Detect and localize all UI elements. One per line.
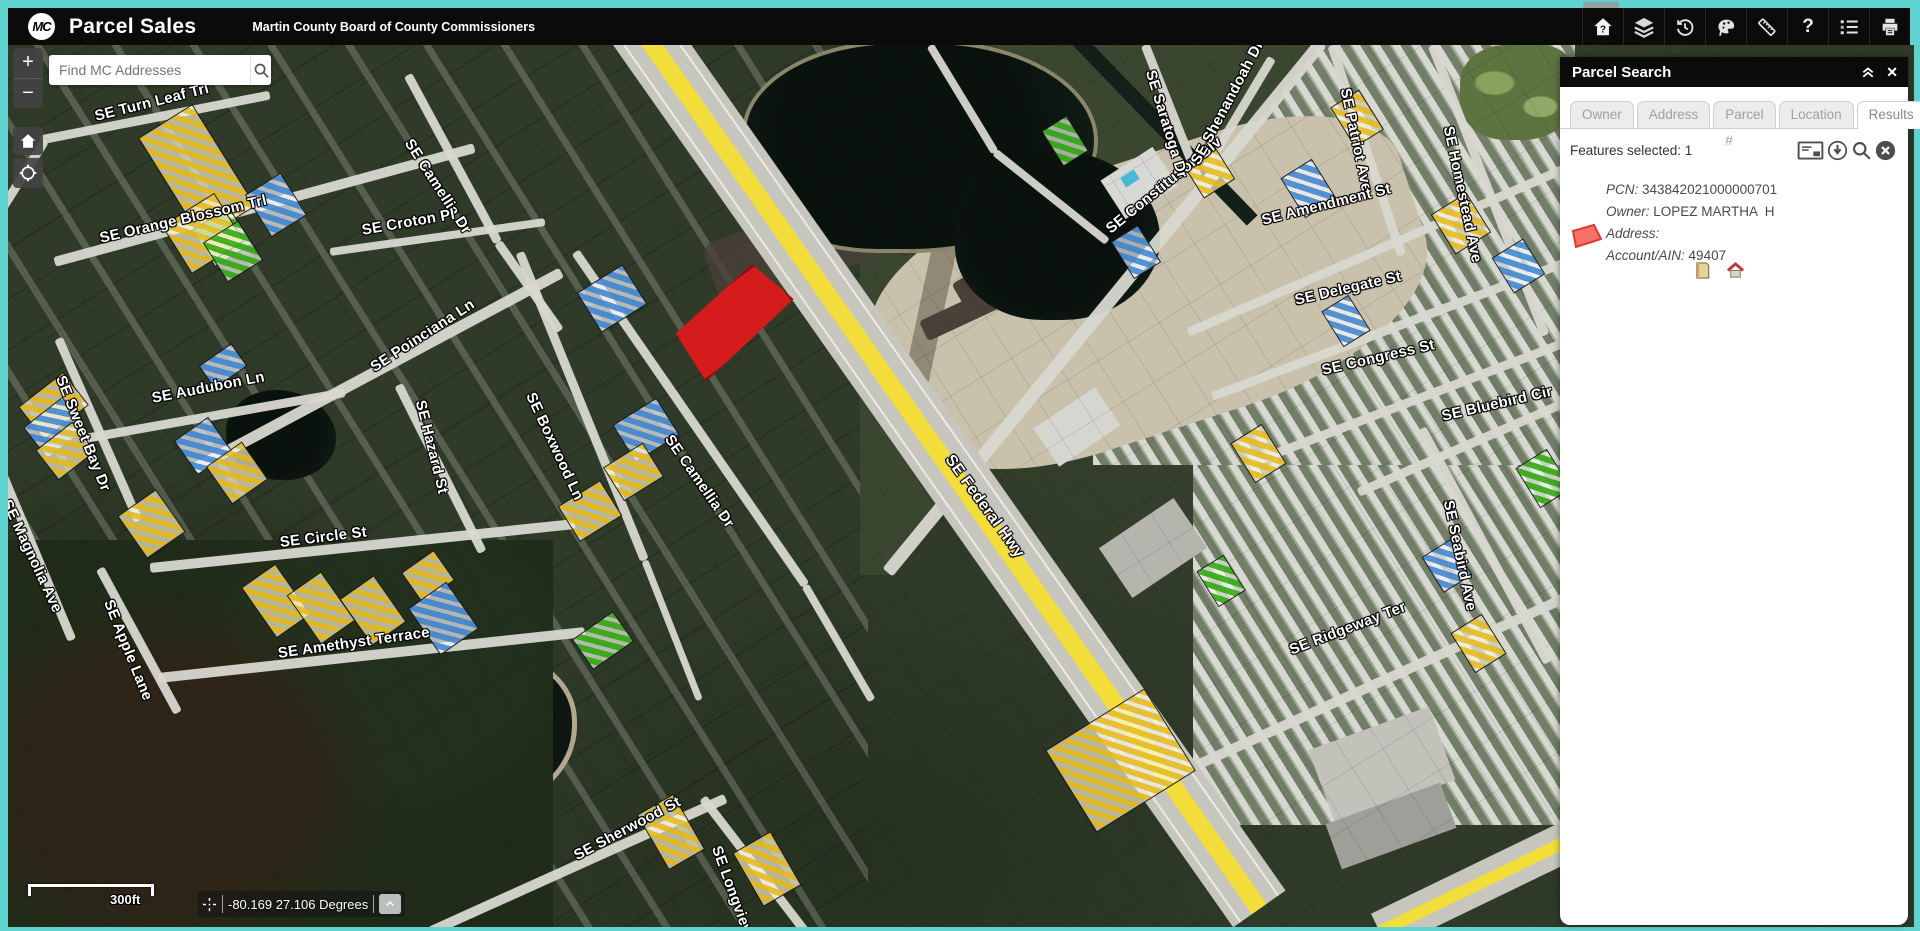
download-circle-icon <box>1827 140 1848 161</box>
mailing-labels-button[interactable] <box>1797 141 1824 160</box>
magnifier-icon <box>1851 140 1872 161</box>
parcel-search-panel: Parcel Search ✕ OwnerAddressParcel #Loca… <box>1560 57 1908 925</box>
legend-list-icon <box>1838 16 1860 38</box>
tab-owner[interactable]: Owner <box>1570 101 1634 128</box>
toolbar-notch <box>1583 2 1619 8</box>
app-subtitle: Martin County Board of County Commission… <box>252 20 535 34</box>
panel-title: Parcel Search <box>1572 64 1671 81</box>
address-label: Address: <box>1606 226 1659 241</box>
app-header: MC Parcel Sales Martin County Board of C… <box>8 8 1910 45</box>
zoom-in-button[interactable]: + <box>13 48 43 79</box>
history-icon <box>1674 16 1696 38</box>
zoom-control: + − <box>13 48 43 108</box>
property-card-button[interactable] <box>1693 261 1712 285</box>
mailing-label-icon <box>1797 141 1824 160</box>
search-icon <box>253 62 270 79</box>
ruler-icon <box>1756 16 1778 38</box>
coordinate-widget: -80.169 27.106 Degrees <box>198 891 405 917</box>
property-appraiser-button[interactable] <box>1726 261 1745 285</box>
panel-tabs: OwnerAddressParcel #LocationResults <box>1560 101 1908 129</box>
house-icon <box>1726 261 1745 280</box>
app-title: Parcel Sales <box>69 15 196 39</box>
panel-close-button[interactable]: ✕ <box>1886 64 1898 81</box>
help-icon: ? <box>1802 16 1814 38</box>
layers-button[interactable] <box>1623 8 1664 45</box>
coordinates-readout: -80.169 27.106 Degrees <box>228 897 368 912</box>
book-icon <box>1693 261 1712 280</box>
legend-button[interactable] <box>1828 8 1869 45</box>
address-search <box>49 55 271 85</box>
chevron-up-icon <box>384 898 396 910</box>
zoom-out-button[interactable]: − <box>13 79 43 109</box>
coordinates-collapse-button[interactable] <box>379 894 401 914</box>
parcel-shape-icon <box>1570 222 1604 250</box>
palette-icon <box>1715 16 1737 38</box>
tab-results[interactable]: Results <box>1857 101 1920 129</box>
measure-button[interactable] <box>1746 8 1787 45</box>
clear-results-button[interactable] <box>1875 140 1896 161</box>
tab-parcel-[interactable]: Parcel # <box>1713 101 1775 128</box>
zoom-to-results-button[interactable] <box>1851 140 1872 161</box>
features-selected-text: Features selected: 1 <box>1570 143 1692 158</box>
account-label: Account/AIN: <box>1606 248 1685 263</box>
home-extent-button[interactable]: ? <box>1582 8 1623 45</box>
home-question-icon: ? <box>1592 16 1614 38</box>
print-icon <box>1879 16 1901 38</box>
result-links <box>1693 261 1745 285</box>
crosshair-icon <box>202 897 217 912</box>
close-icon: ✕ <box>1886 64 1898 81</box>
svg-text:?: ? <box>1600 24 1606 35</box>
draw-button[interactable] <box>1705 8 1746 45</box>
locate-button[interactable] <box>13 158 43 188</box>
toolbar: ? <box>1582 8 1910 45</box>
layers-icon <box>1633 16 1655 38</box>
scale-label: 300ft <box>110 892 140 907</box>
home-button[interactable] <box>13 127 43 155</box>
result-fields: PCN: 343842021000000701 Owner: LOPEZ MAR… <box>1606 179 1777 267</box>
pcn-value: 343842021000000701 <box>1638 182 1777 197</box>
features-row: Features selected: 1 <box>1560 129 1908 161</box>
mc-logo-icon: MC <box>28 13 55 40</box>
locate-icon <box>18 163 38 183</box>
result-item[interactable]: PCN: 343842021000000701 Owner: LOPEZ MAR… <box>1560 177 1908 297</box>
help-button[interactable]: ? <box>1787 8 1828 45</box>
tab-address[interactable]: Address <box>1637 101 1711 128</box>
export-results-button[interactable] <box>1827 140 1848 161</box>
print-button[interactable] <box>1869 8 1910 45</box>
clear-circle-icon <box>1875 140 1896 161</box>
history-button[interactable] <box>1664 8 1705 45</box>
pcn-label: PCN: <box>1606 182 1638 197</box>
panel-collapse-button[interactable] <box>1860 64 1876 80</box>
search-input[interactable] <box>49 55 250 85</box>
panel-header: Parcel Search ✕ <box>1560 57 1908 87</box>
home-icon <box>19 132 37 150</box>
search-button[interactable] <box>250 55 271 85</box>
owner-label: Owner: <box>1606 204 1650 219</box>
double-chevron-up-icon <box>1860 64 1876 80</box>
tab-location[interactable]: Location <box>1779 101 1854 128</box>
owner-value: LOPEZ MARTHA H <box>1650 204 1775 219</box>
